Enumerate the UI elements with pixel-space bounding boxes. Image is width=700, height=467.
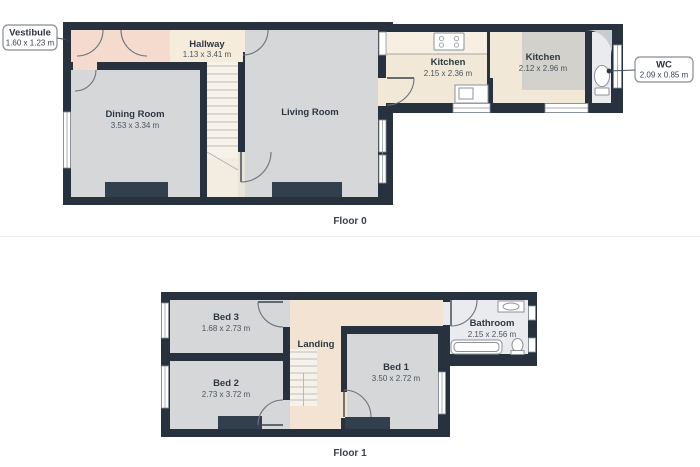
wc-callout-dims: 2.09 x 0.85 m [640, 71, 689, 80]
toilet-tank-icon [511, 351, 524, 355]
sink-basin-icon [503, 303, 519, 310]
dining-label: Dining Room [105, 109, 164, 120]
bed1-dims: 3.50 x 2.72 m [372, 374, 421, 383]
floorplan-svg: Hallway 1.13 x 3.41 m Dining Room 3.53 x… [0, 0, 700, 467]
chimney-bed1 [345, 417, 390, 429]
doorway-fill [378, 78, 386, 106]
doorway-fill [238, 30, 245, 52]
chimney-bed2 [218, 416, 262, 429]
wc-leader-dot [607, 69, 612, 74]
floor0-label: Floor 0 [333, 216, 367, 227]
dining-dims: 3.53 x 3.34 m [111, 121, 160, 130]
bathroom-label: Bathroom [470, 318, 515, 329]
landing-label: Landing [298, 339, 335, 350]
wc-callout-title: WC [656, 60, 672, 71]
vestibule-callout-dims: 1.60 x 1.23 m [6, 39, 55, 48]
bed2-label: Bed 2 [213, 378, 239, 389]
bed3-label: Bed 3 [213, 312, 239, 323]
stairs-bg [207, 62, 238, 158]
toilet-bowl-icon [512, 339, 523, 352]
floor0-stairs [207, 62, 238, 170]
floor1-stairs [290, 349, 317, 406]
kitchen2-label: Kitchen [526, 52, 561, 63]
room-dining [71, 70, 200, 197]
stove-icon [434, 33, 464, 50]
floor0-plan: Hallway 1.13 x 3.41 m Dining Room 3.53 x… [63, 22, 623, 205]
window [529, 306, 536, 320]
sink-basin-icon [459, 88, 473, 99]
doorway-fill [283, 300, 290, 327]
vestibule-leader-dot [66, 38, 71, 43]
window [529, 338, 536, 352]
bathtub-inner-icon [454, 343, 499, 352]
floor1-plan: Bed 3 1.68 x 2.73 m Bed 2 2.73 x 3.72 m … [161, 292, 537, 437]
kitchen1-dims: 2.15 x 2.36 m [424, 69, 473, 78]
toilet-bowl-icon [595, 66, 610, 87]
living-label: Living Room [281, 107, 339, 118]
window [379, 32, 386, 55]
floor1-label: Floor 1 [333, 448, 367, 459]
vestibule-callout-title: Vestibule [9, 28, 51, 39]
doorway-fill [283, 400, 290, 429]
doorway-fill [443, 302, 450, 325]
landing-corridor [341, 300, 443, 326]
bed2-dims: 2.73 x 3.72 m [202, 390, 251, 399]
doorway-fill [73, 62, 97, 70]
chimney-dining [105, 182, 168, 197]
hallway-label: Hallway [189, 39, 225, 50]
chimney-living [272, 182, 342, 197]
toilet-tank-icon [595, 88, 609, 95]
kitchen2-dims: 2.12 x 2.96 m [519, 64, 568, 73]
bed3-dims: 1.68 x 2.73 m [202, 324, 251, 333]
hallway-dims: 1.13 x 3.41 m [183, 50, 232, 59]
room-vestibule [71, 30, 170, 62]
kitchen1-label: Kitchen [431, 57, 466, 68]
bathroom-dims: 2.15 x 2.56 m [468, 330, 517, 339]
floorplan-canvas: Hallway 1.13 x 3.41 m Dining Room 3.53 x… [0, 0, 700, 467]
bed1-label: Bed 1 [383, 362, 410, 373]
